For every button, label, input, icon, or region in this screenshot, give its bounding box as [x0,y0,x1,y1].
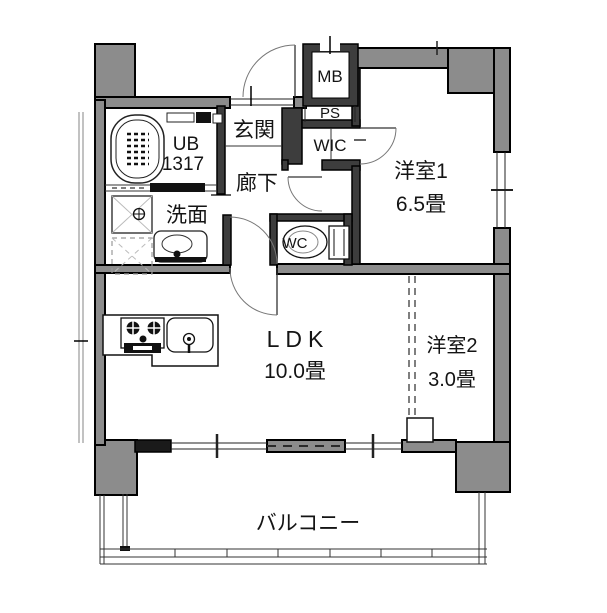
toilet-tank [329,226,349,259]
wall-bottomright-block [456,442,510,492]
label-washroom: 洗面 [166,204,208,227]
sink-faucet-dot [187,337,191,341]
label-entrance: 玄関 [233,119,275,142]
wall-washroom-bottom [95,265,230,273]
label-corridor: 廊下 [236,172,278,195]
ub-door-sill [150,183,205,192]
label-room2-area: 3.0畳 [428,369,476,391]
wall-bottom-kitchen [135,440,171,452]
ub-shelf [213,114,222,123]
wall-corridor-left-stub [223,215,231,265]
label-unit-bath: UB [173,134,199,155]
label-unit-bath-size: 1317 [162,154,204,175]
wall-topleft-pillar [95,44,135,101]
label-meter-box: MB [317,67,343,86]
room2-column [407,418,433,442]
wall-wc-left [270,214,277,265]
label-room1-area: 6.5畳 [396,193,446,216]
wall-wic-bottom-left [282,160,288,170]
label-room1-name: 洋室1 [394,160,448,183]
wall-top-left [95,97,230,108]
wall-right-lower [494,228,510,442]
label-pipe-space: PS [320,105,340,122]
label-room2-name: 洋室2 [426,334,477,357]
wall-ldk-top [277,264,510,274]
label-ldk-area: 10.0畳 [264,360,326,383]
floor-plan-drawing: UB 1317 玄関 廊下 洗面 MB PS WIC WC 洋室1 6.5畳 L… [0,0,607,613]
floor-plan: UB 1317 玄関 廊下 洗面 MB PS WIC WC 洋室1 6.5畳 L… [0,0,607,613]
label-balcony: バルコニー [256,512,361,535]
label-ldk-name: LDK [267,326,330,352]
wall-right-column [494,48,510,152]
wall-room1-left-lower [352,166,360,264]
wall-entrance-pillar [282,108,302,164]
ub-mirror-box [196,112,211,123]
label-wc: WC [283,235,308,252]
wall-bottomleft-block [95,440,137,495]
stove-grill-slot [133,346,152,350]
ub-counter [167,113,194,122]
label-wic: WIC [313,136,346,155]
vanity-front-edge [155,257,206,262]
wall-wc-top [270,214,352,221]
